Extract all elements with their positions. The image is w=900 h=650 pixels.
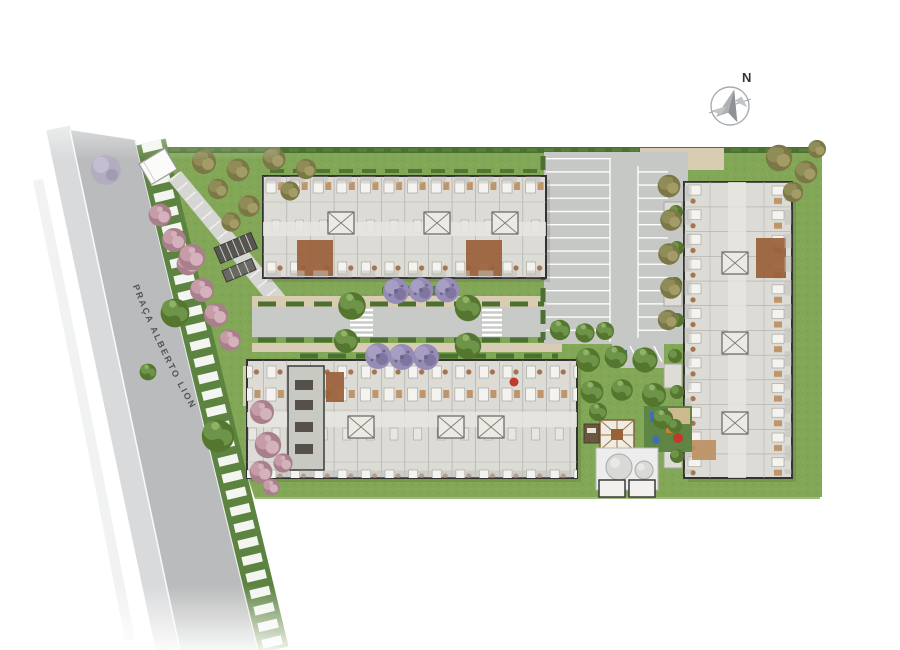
stair-core <box>348 416 374 438</box>
site-plan-page: PRAÇA ALBERTO LION <box>0 0 900 650</box>
stair-core <box>722 412 748 434</box>
wood-deck <box>692 440 716 460</box>
wood-room <box>326 372 344 402</box>
service-box <box>295 380 313 390</box>
stair-core <box>478 416 504 438</box>
stair-core <box>328 212 354 234</box>
play-equipment <box>652 436 660 444</box>
north-label: N <box>742 70 751 85</box>
site-plan-canvas: PRAÇA ALBERTO LION <box>0 0 900 650</box>
pergola <box>600 420 634 450</box>
top-left-fade <box>20 92 280 160</box>
service-box <box>295 400 313 410</box>
water-tanks <box>596 448 658 497</box>
bottom-left-fade <box>30 585 300 650</box>
utility-room <box>629 480 655 497</box>
stair-core <box>722 332 748 354</box>
service-box <box>295 422 313 432</box>
utility-room <box>599 480 625 497</box>
play-equipment <box>673 433 683 443</box>
stair-core <box>424 212 450 234</box>
bottom-building <box>247 352 581 482</box>
stair-core <box>722 252 748 274</box>
wood-deck <box>756 238 786 278</box>
parking-stalls-left <box>546 158 610 342</box>
top-building <box>263 171 550 295</box>
stair-core <box>438 416 464 438</box>
red-table <box>510 378 519 387</box>
stair-core <box>492 212 518 234</box>
service-box <box>295 444 313 454</box>
entry-pad <box>664 364 682 388</box>
compass-icon: N <box>709 70 751 125</box>
barbecue-kiosk <box>584 424 599 443</box>
